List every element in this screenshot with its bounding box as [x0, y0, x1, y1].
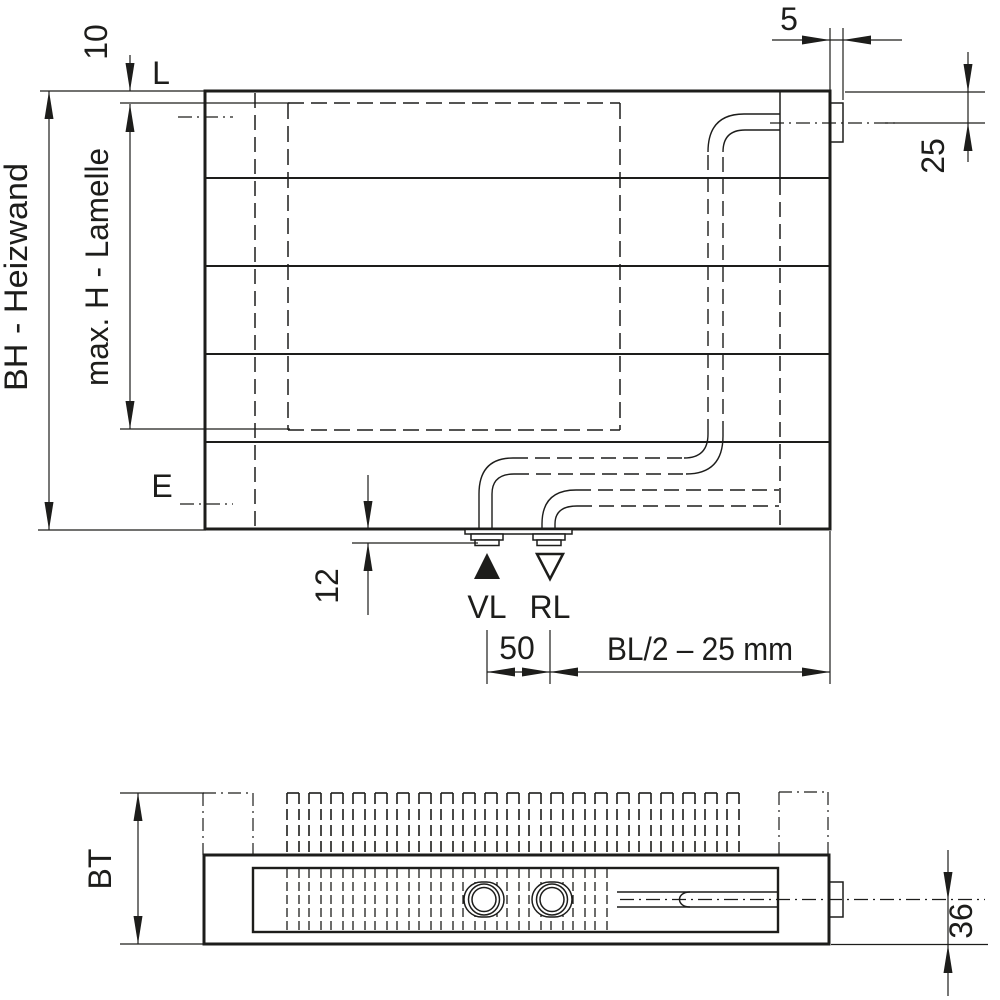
label-supply: VL — [467, 589, 506, 625]
dim-top-offset — [126, 55, 135, 91]
hidden-collector-lines — [255, 93, 780, 528]
dim-stub-drop — [352, 475, 478, 615]
phantom-outlines — [203, 792, 828, 855]
label-vent-offset: 25 — [915, 138, 951, 174]
plan-view: BT 36 — [82, 792, 988, 996]
label-level-e: E — [151, 468, 172, 504]
return-pipe — [542, 490, 779, 530]
label-top-offset: 10 — [78, 24, 114, 60]
technical-drawing: 10 L 5 25 BH - Heizwand max. H - Lamelle… — [0, 0, 1000, 1000]
label-stub-drop: 12 — [309, 568, 345, 604]
label-overall-height: BH - Heizwand — [0, 163, 34, 391]
front-view: 10 L 5 25 BH - Heizwand max. H - Lamelle… — [0, 1, 985, 684]
panel-division-lines — [206, 178, 829, 442]
dim-depth — [120, 793, 204, 944]
pipe-sections — [464, 882, 572, 917]
label-pipe-axis-offset: 36 — [943, 903, 979, 939]
return-arrow-marker — [537, 554, 563, 579]
connection-stubs — [465, 530, 572, 546]
supply-arrow-marker — [474, 553, 500, 579]
dim-vent-width — [772, 28, 902, 100]
label-depth: BT — [82, 849, 118, 890]
label-connection-position: BL/2 – 25 mm — [607, 631, 793, 667]
drawing-svg: 10 L 5 25 BH - Heizwand max. H - Lamelle… — [0, 0, 1000, 1000]
label-vent-width: 5 — [780, 1, 798, 37]
label-connection-pitch: 50 — [499, 630, 535, 666]
supply-pipe — [479, 114, 780, 530]
dim-overall-height — [38, 91, 206, 530]
fin-comb — [287, 793, 739, 855]
radiator-body-outline — [205, 91, 830, 529]
label-return: RL — [530, 589, 571, 625]
label-lamelle-height: max. H - Lamelle — [79, 148, 115, 386]
label-level-l: L — [152, 55, 170, 91]
